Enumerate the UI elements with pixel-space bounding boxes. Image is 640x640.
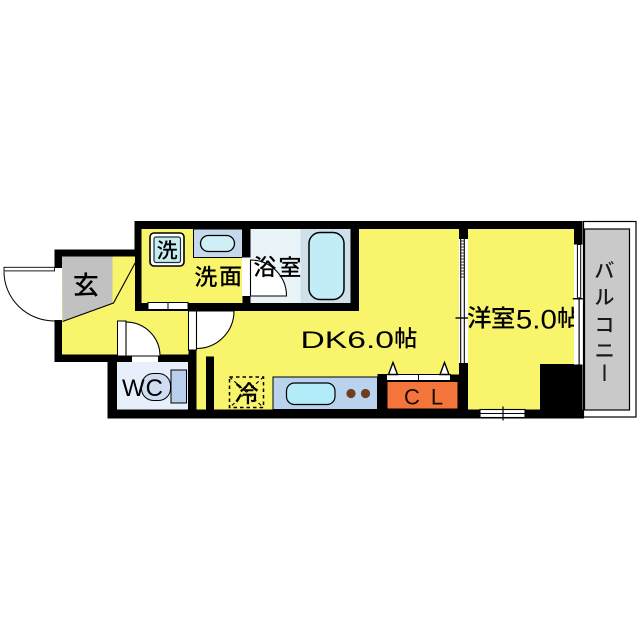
svg-text:5.0: 5.0 (516, 305, 557, 335)
svg-text:WC: WC (122, 375, 164, 402)
svg-text:DK6.0: DK6.0 (301, 327, 395, 354)
svg-text:CL: CL (404, 385, 454, 410)
